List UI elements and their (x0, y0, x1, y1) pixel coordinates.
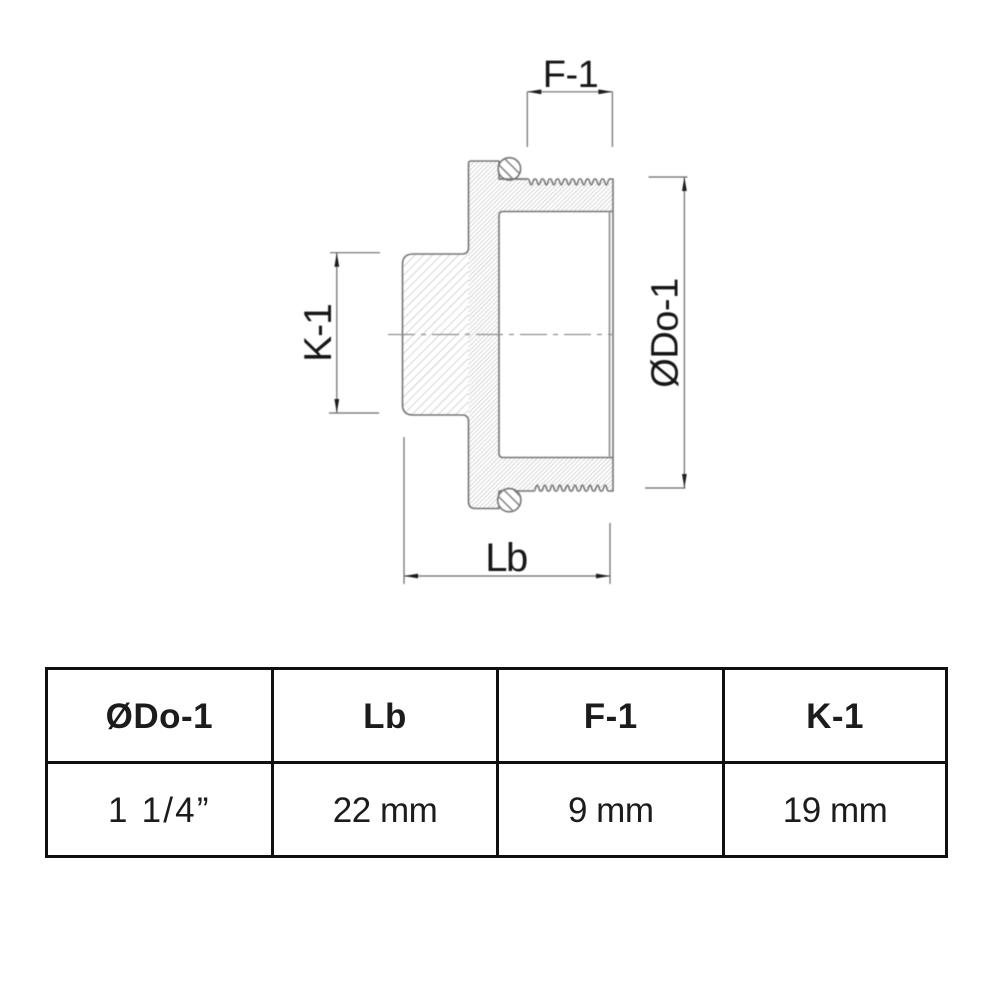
svg-text:ØDo-1: ØDo-1 (645, 278, 687, 387)
svg-text:F-1: F-1 (543, 54, 599, 96)
svg-text:K-1: K-1 (297, 304, 340, 362)
svg-text:Lb: Lb (485, 536, 527, 580)
